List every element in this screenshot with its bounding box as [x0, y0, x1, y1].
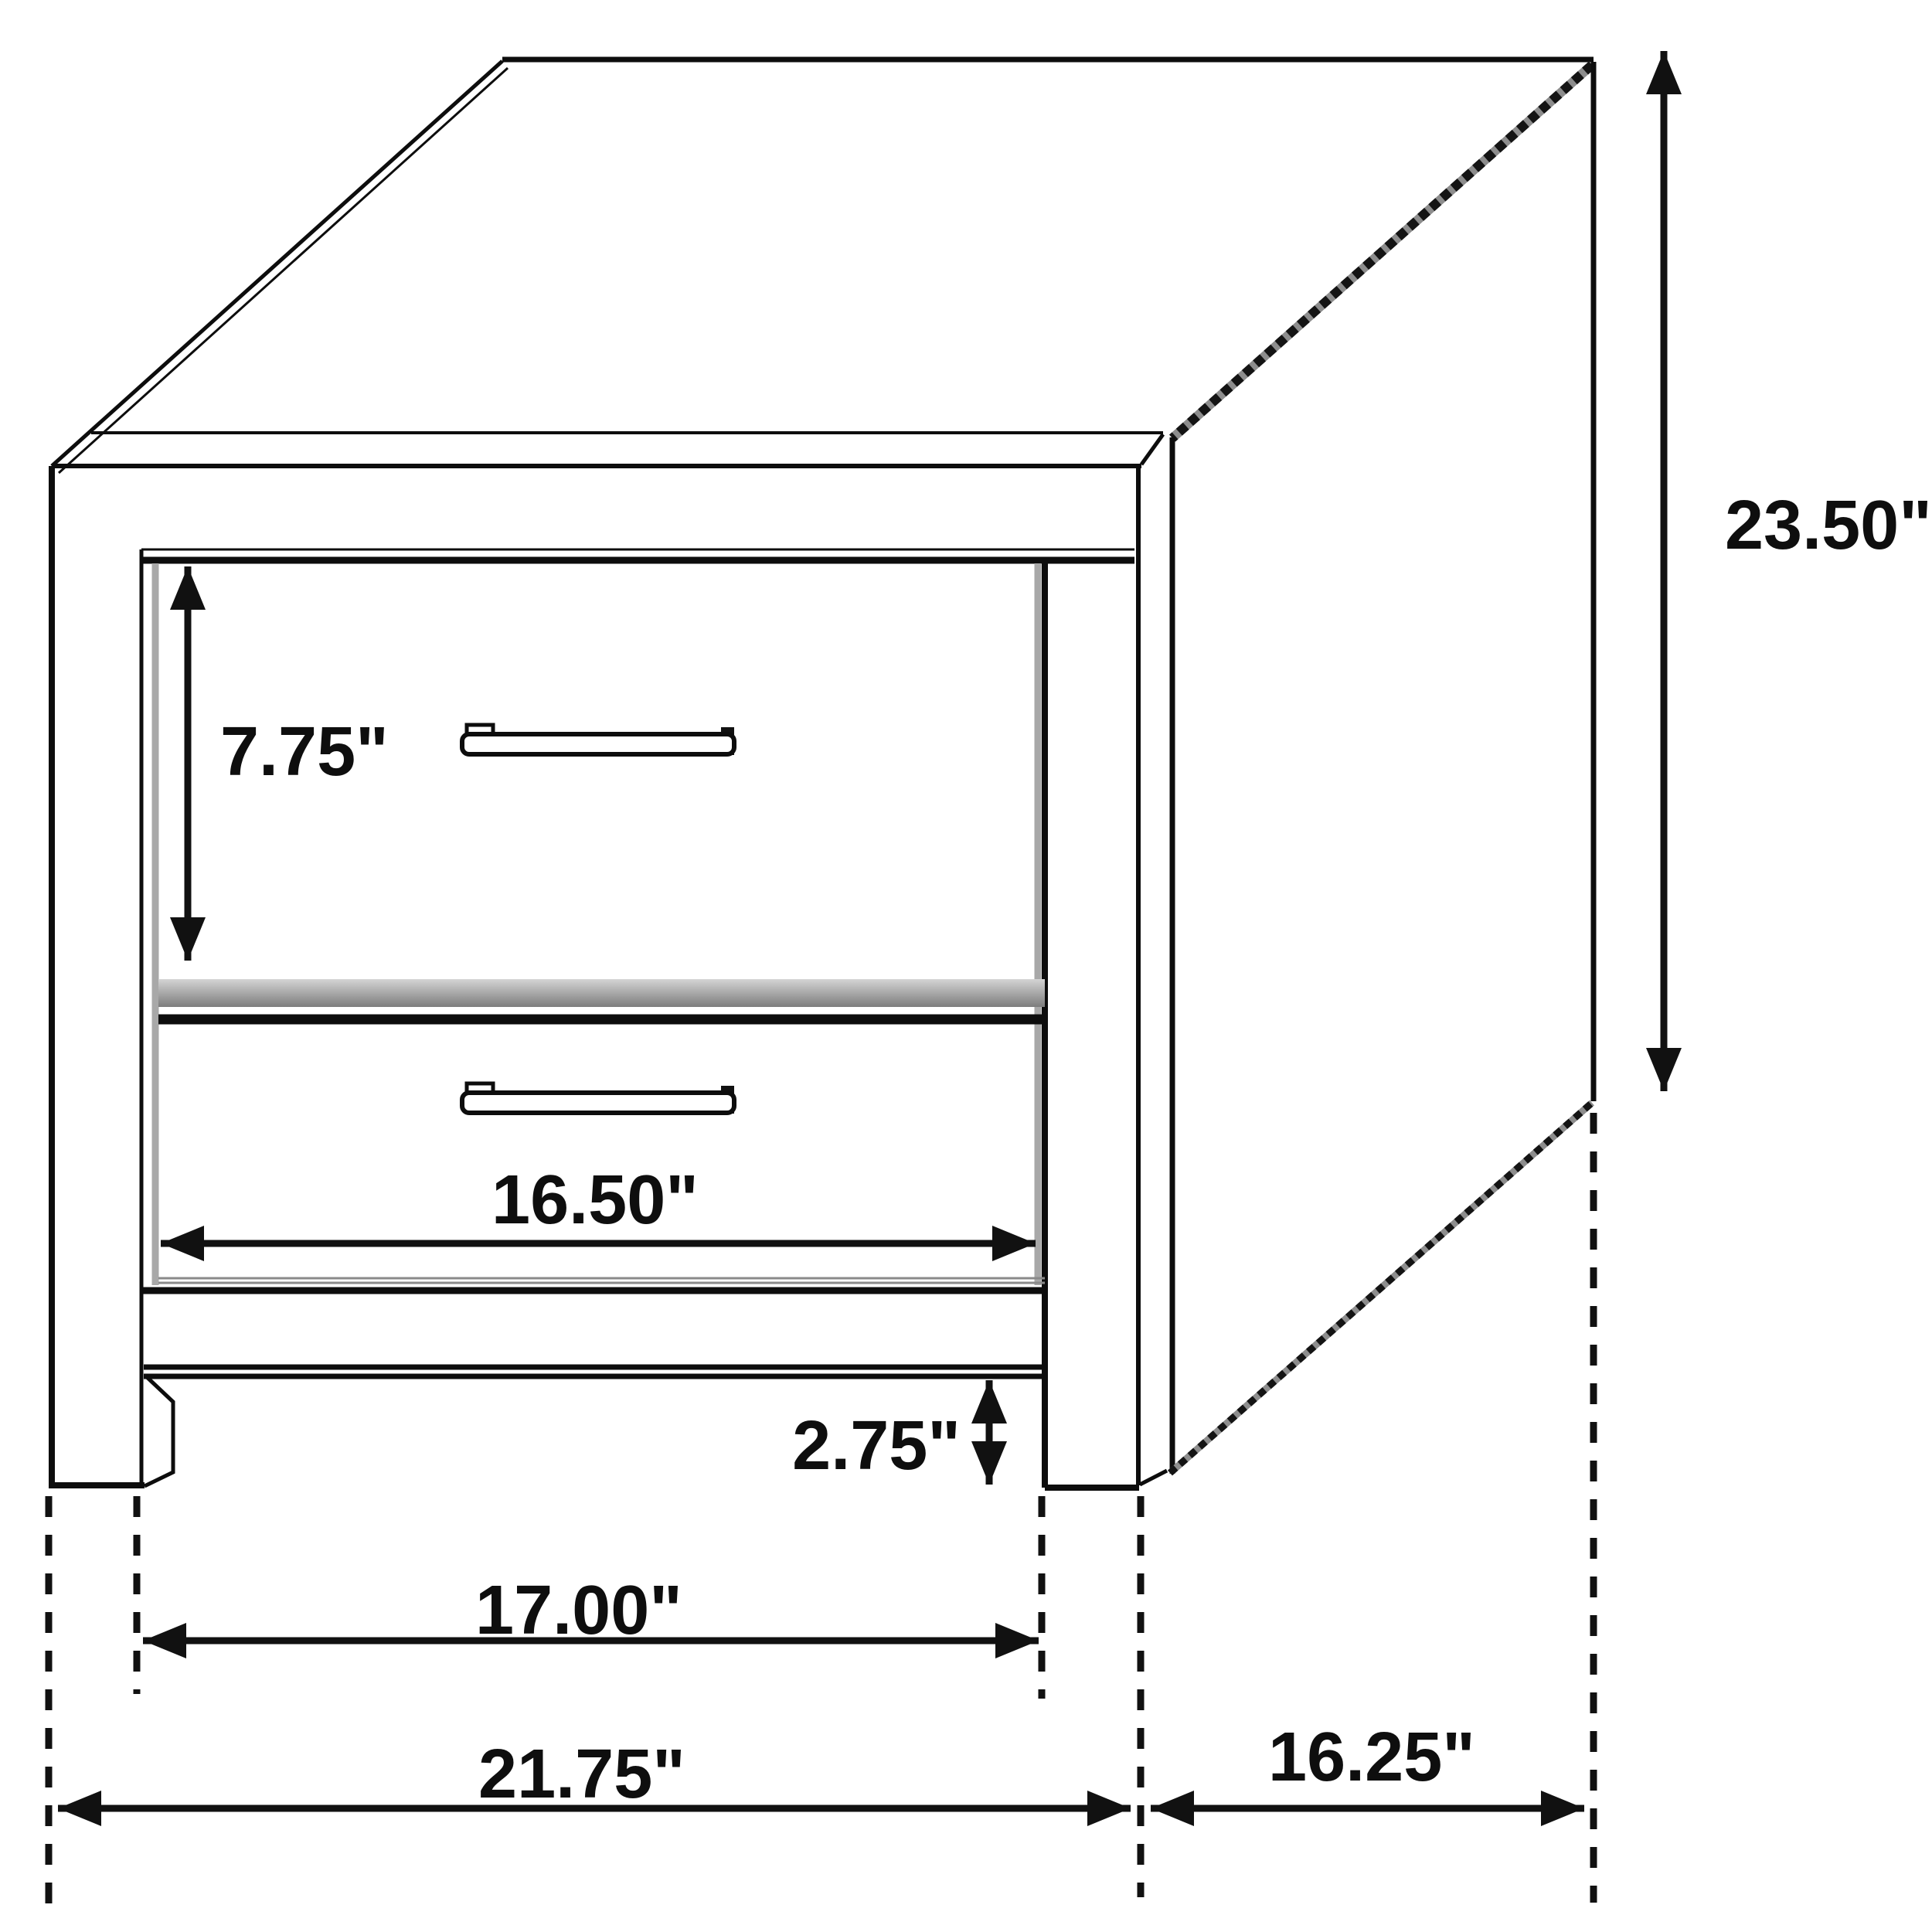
- handle2-bar: [462, 1093, 734, 1113]
- label-overall-width: 21.75": [478, 1736, 685, 1813]
- label-drawer-height: 7.75": [220, 713, 389, 791]
- label-between-legs-width: 17.00": [475, 1572, 682, 1649]
- label-leg-height: 2.75": [792, 1407, 961, 1485]
- nightstand-dimension-diagram: 7.75" 23.50" 16.50" 2.75" 17.00" 21.75" …: [0, 0, 1932, 1932]
- divider-shadow-band: [158, 979, 1045, 1007]
- label-drawer-width: 16.50": [492, 1162, 699, 1239]
- label-overall-depth: 16.25": [1268, 1719, 1475, 1796]
- label-overall-height: 23.50": [1725, 487, 1932, 564]
- diagram-canvas: 7.75" 23.50" 16.50" 2.75" 17.00" 21.75" …: [0, 0, 1932, 1932]
- handle1-bar: [462, 734, 734, 754]
